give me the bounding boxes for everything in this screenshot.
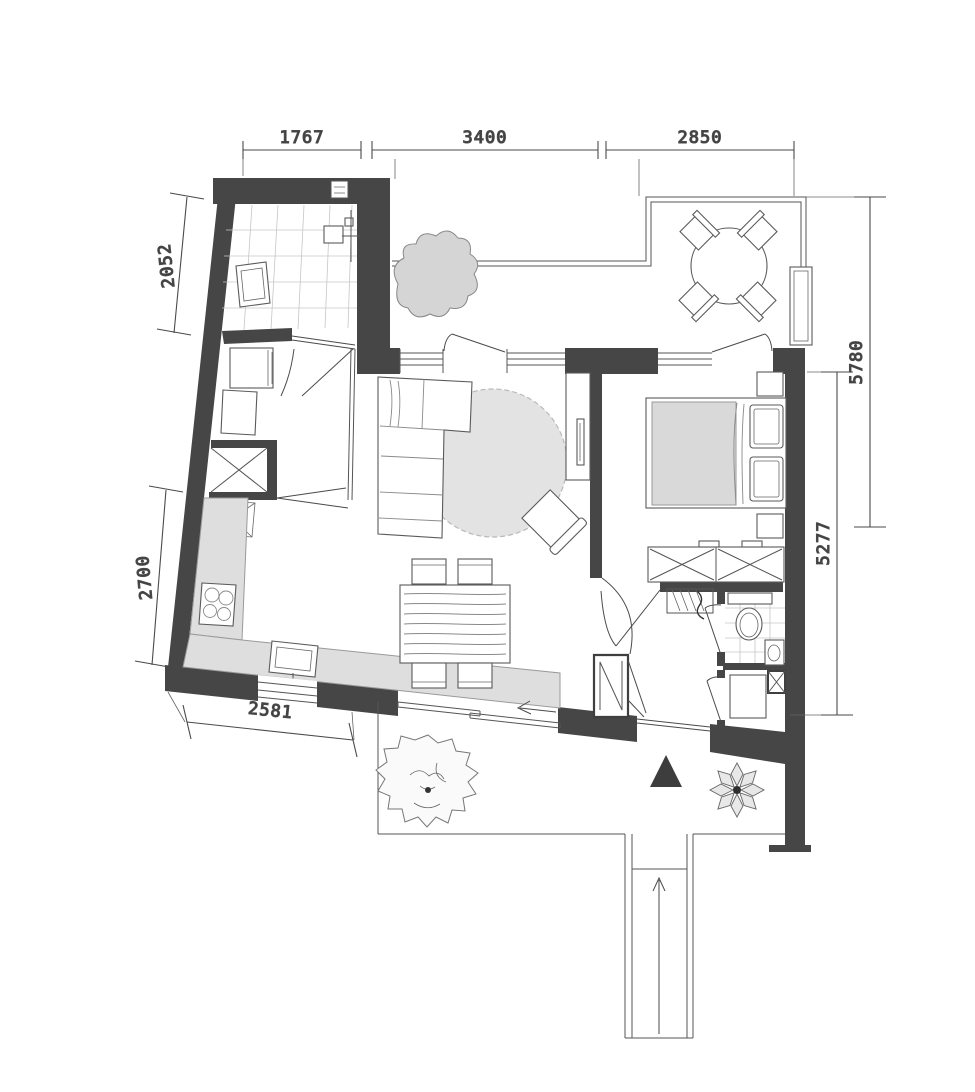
laundry-room	[211, 348, 355, 508]
shower-mat	[236, 262, 270, 307]
duvet	[652, 402, 736, 505]
entrance-marker-icon	[650, 755, 682, 787]
bathroom-door	[281, 336, 355, 396]
dim-top-2: 3400	[463, 128, 508, 148]
terrace-door	[444, 334, 505, 352]
dim-right-2: 5277	[814, 521, 834, 566]
stove-icon	[199, 583, 236, 626]
dryer	[221, 390, 257, 435]
laundry-partition	[348, 349, 355, 500]
storage-door	[707, 677, 721, 722]
nightstand	[757, 514, 783, 538]
wc-room	[725, 593, 785, 665]
wall-storage-left-b	[717, 720, 725, 738]
coat-rack-icon	[667, 589, 713, 619]
planter-shrub-icon	[394, 231, 478, 317]
tree-icon	[376, 735, 478, 827]
wall-shaft-right	[267, 440, 277, 500]
living-room	[378, 373, 590, 688]
balcony	[392, 197, 812, 345]
floor-plan-drawing: 1767 3400 2850 2052 2700 5780 5277 2581	[0, 0, 975, 1092]
storage-room	[730, 671, 785, 718]
boiler	[730, 675, 766, 718]
wall-wc-left-a	[717, 592, 725, 604]
floor-plan-page: 1767 3400 2850 2052 2700 5780 5277 2581	[0, 0, 975, 1092]
bedroom-window	[658, 348, 712, 374]
washer	[230, 348, 273, 388]
wall-right	[785, 348, 805, 846]
pillow	[750, 457, 783, 501]
shaft-x	[211, 448, 267, 492]
tv-icon	[577, 419, 584, 465]
privacy-screen	[790, 267, 812, 345]
dim-top-3: 2850	[678, 128, 723, 148]
storage-shaft-x	[768, 671, 785, 693]
dim-left-2: 2700	[133, 554, 157, 601]
living-window-right	[507, 348, 565, 374]
dim-bottom-1: 2581	[247, 699, 294, 724]
nightstand	[757, 372, 783, 396]
wall-living-bedroom	[590, 374, 602, 578]
wall-right-cap	[769, 845, 811, 852]
toilet-icon	[728, 593, 772, 640]
dim-right-1: 5780	[847, 340, 867, 385]
flower-icon	[710, 763, 764, 817]
pillow	[750, 405, 783, 448]
laundry-door	[277, 488, 348, 508]
double-bed	[646, 398, 786, 508]
washbasin-icon	[765, 640, 784, 665]
walkway-direction-arrow-icon	[653, 878, 665, 1034]
hallway	[594, 578, 721, 731]
dining-table	[400, 585, 510, 663]
wall-bath-laundry	[222, 328, 292, 344]
dim-top-1: 1767	[280, 128, 325, 148]
wall-central-stub	[357, 348, 403, 374]
wall-facade-pier	[565, 348, 658, 374]
tv-cabinet	[566, 373, 590, 480]
balcony-door	[712, 334, 772, 352]
dim-left-1: 2052	[155, 242, 180, 289]
wardrobe	[648, 541, 784, 582]
living-window-left	[400, 348, 443, 374]
wall-central	[357, 178, 390, 348]
wall-recess	[331, 181, 348, 198]
walkway	[625, 834, 693, 1038]
